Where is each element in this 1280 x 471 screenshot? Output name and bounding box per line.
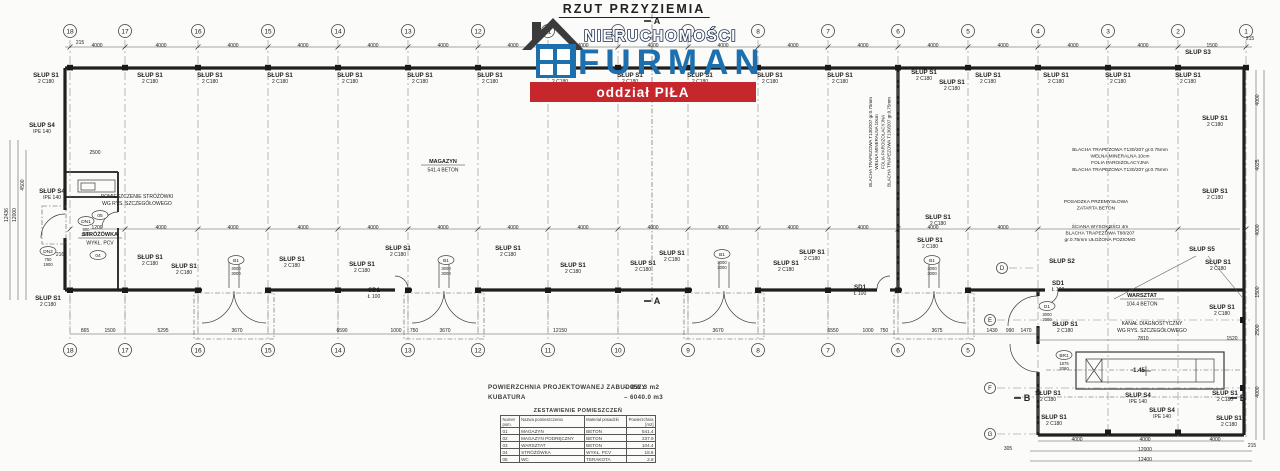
- room-tag-name: WARSZTAT: [1127, 293, 1157, 299]
- dimension-text: 4000: [227, 43, 238, 49]
- door-size: 2060: [1059, 366, 1069, 371]
- column-marker: [1105, 65, 1111, 71]
- dimension-text: 1500: [1255, 286, 1261, 297]
- note-text: ZATARTA BETON: [1077, 206, 1116, 212]
- column-label: SŁUP S4: [29, 122, 55, 129]
- table-row: 03WARSZTATBETON104.4: [501, 442, 656, 449]
- column-label: SŁUP S1: [197, 72, 223, 79]
- column-marker: [405, 65, 411, 71]
- column-marker: [265, 65, 271, 71]
- section-mark: B: [1240, 393, 1247, 403]
- column-label: SŁUP S1: [407, 72, 433, 79]
- column-label: SŁUP S1: [1202, 115, 1228, 122]
- table-cell: STRÓŻÓWKA: [519, 449, 584, 456]
- column-label-profile: 2 C180: [1221, 422, 1237, 428]
- column-marker: [1105, 430, 1111, 436]
- note-text: WEŁNA MINERALNA 10cm: [874, 114, 879, 170]
- column-label: SŁUP S1: [1202, 188, 1228, 195]
- dimension-text: 1470: [1020, 328, 1031, 334]
- grid-number: 4: [1036, 28, 1040, 35]
- logo-graphic: NIERUCHOMOŚCI FURMAN: [520, 14, 790, 80]
- note-text: BLACHA TRAPEZOWA T130/207 gr.0.75mm: [887, 97, 892, 187]
- dimension-text: 4000: [997, 43, 1008, 49]
- door-tag: 05: [97, 213, 103, 219]
- grid-number: 8: [756, 347, 760, 354]
- column-marker: [122, 288, 128, 294]
- door-label: SD1: [368, 287, 381, 294]
- note-text: FOLIA PAROIZOLACYJNA: [880, 115, 885, 169]
- door-size: 3000: [441, 271, 451, 276]
- dimension-text: 4000: [1137, 43, 1148, 49]
- column-label: SŁUP S1: [1212, 390, 1238, 397]
- logo-branch-banner: oddział PIŁA: [530, 82, 756, 102]
- dimension-text: 4000: [1071, 437, 1082, 443]
- door-tag: 04: [95, 253, 101, 259]
- dimension-text: 4000: [997, 225, 1008, 231]
- grid-number: 18: [66, 347, 74, 354]
- column-marker: [1240, 385, 1246, 391]
- dimension-text: 4000: [297, 225, 308, 231]
- column-label-profile: 2 C180: [342, 79, 358, 85]
- dimension-text: 1000: [862, 328, 873, 334]
- dimension-text: 215: [76, 40, 85, 46]
- grid-number: 12: [474, 347, 482, 354]
- table-row: 02MAGAZYN PODRĘCZNYBETON237.9: [501, 435, 656, 442]
- grid-number: 11: [545, 347, 552, 354]
- dimension-text: 1430: [986, 328, 997, 334]
- column-label: SŁUP S1: [337, 72, 363, 79]
- grid-number: 5: [966, 347, 970, 354]
- area-value: – 952.3 m2: [624, 384, 659, 391]
- column-label-profile: IPE 140: [33, 129, 51, 135]
- column-label: SŁUP S1: [267, 72, 293, 79]
- note-text: WG RYS. SZCZEGÓŁOWEGO: [1117, 327, 1187, 334]
- column-label: SŁUP S1: [1105, 72, 1131, 79]
- dimension-text: 4000: [927, 43, 938, 49]
- dimension-text: 4000: [367, 225, 378, 231]
- area-label: POWIERZCHNIA PROJEKTOWANEJ ZABUDOWY: [488, 383, 624, 393]
- dimension-text: 4000: [787, 225, 798, 231]
- column-marker: [475, 288, 481, 294]
- door-size: 3000: [927, 271, 937, 276]
- column-label: SŁUP S1: [659, 250, 685, 257]
- grid-number: 2: [1176, 28, 1180, 35]
- note-text: BLACHA TRAPEZOWA T130/207 gr.0.75mm: [1072, 167, 1168, 173]
- rooms-table-header: Materiał posadzki: [584, 416, 626, 428]
- column-label: SŁUP S1: [477, 72, 503, 79]
- grid-letter: D: [1000, 266, 1005, 272]
- column-label: SŁUP S1: [925, 214, 951, 221]
- column-label: SŁUP S1: [799, 249, 825, 256]
- column-label-profile: 2 C180: [1207, 195, 1223, 201]
- volume-row: KUBATURA– 6040.0 m3: [488, 393, 663, 403]
- column-marker: [1240, 317, 1246, 323]
- column-label-profile: 2 C180: [1046, 421, 1062, 427]
- table-cell: MAGAZYN: [519, 428, 584, 435]
- dimension-text: 3670: [231, 328, 242, 334]
- column-marker: [615, 288, 621, 294]
- table-cell: 104.4: [626, 442, 655, 449]
- column-label-profile: 2 C180: [482, 79, 498, 85]
- table-cell: 01: [501, 428, 520, 435]
- table-cell: 2.8: [626, 456, 655, 463]
- door-tag: DN1: [81, 219, 91, 225]
- door-label-profile: Ł 100: [1052, 287, 1065, 293]
- dimension-text: 4000: [507, 43, 518, 49]
- column-label: SŁUP S1: [1035, 390, 1061, 397]
- dimension-text: 750: [880, 328, 889, 334]
- column-label-profile: 2 C180: [832, 79, 848, 85]
- column-label: SŁUP S1: [1209, 304, 1235, 311]
- column-label-profile: 2 C180: [1210, 266, 1226, 272]
- dimension-text: 4025: [1255, 159, 1261, 170]
- dimension-text: 12000: [1138, 447, 1152, 453]
- section-mark: B: [1024, 393, 1031, 403]
- volume-value: – 6040.0 m3: [624, 394, 663, 401]
- column-marker: [1175, 430, 1181, 436]
- dimension-text: 6590: [336, 328, 347, 334]
- dimension-text: 3670: [712, 328, 723, 334]
- column-label-profile: 2 C180: [778, 267, 794, 273]
- column-label-profile: 2 C180: [142, 261, 158, 267]
- dimension-text: 750: [410, 328, 419, 334]
- table-cell: WYKŁ. PCV: [584, 449, 626, 456]
- drawing-sheet: 1817161514131211109876543211817161514131…: [0, 0, 1280, 471]
- watermark-logo: NIERUCHOMOŚCI FURMAN: [520, 14, 790, 80]
- column-label-profile: 2 C180: [1207, 122, 1223, 128]
- table-cell: 237.9: [626, 435, 655, 442]
- column-marker: [122, 65, 128, 71]
- table-cell: 541.4: [626, 428, 655, 435]
- dimension-text: 1500: [104, 328, 115, 334]
- column-label: SŁUP S3: [1185, 49, 1211, 56]
- column-label-profile: 2 C180: [565, 269, 581, 275]
- dimension-text: 5295: [157, 328, 168, 334]
- column-label-profile: 2 C180: [38, 79, 54, 85]
- dimension-text: 1520: [1226, 336, 1237, 342]
- door-label: SD1: [1052, 280, 1065, 287]
- dimension-text: 4000: [1255, 386, 1261, 397]
- column-label-profile: 2 C180: [40, 302, 56, 308]
- column-label-profile: 2 C180: [1110, 79, 1126, 85]
- grid-number: 5: [966, 28, 970, 35]
- rooms-table: ZESTAWIENIE POMIESZCZEŃ Numer pom.Nazwa …: [500, 408, 656, 463]
- column-label: SŁUP S1: [349, 261, 375, 268]
- column-label: SŁUP S1: [975, 72, 1001, 79]
- annotation-notes: POMIESZCZENIE STRÓŻÓWKIWG RYS. SZCZEGÓŁO…: [101, 97, 1187, 334]
- grid-number: 15: [264, 347, 272, 354]
- column-label: SŁUP S4: [1149, 407, 1175, 414]
- logo-furman-text: FURMAN: [578, 43, 766, 80]
- column-label: SŁUP S1: [1043, 72, 1069, 79]
- column-marker: [475, 65, 481, 71]
- column-label: SŁUP S1: [1041, 414, 1067, 421]
- column-marker: [895, 65, 901, 71]
- grid-number: 7: [826, 347, 830, 354]
- column-label-profile: 2 C180: [916, 76, 932, 82]
- door-tag: DN2: [43, 249, 53, 255]
- door-tag: B1: [929, 258, 935, 264]
- column-label: SŁUP S1: [35, 295, 61, 302]
- dimension-text: 4000: [437, 225, 448, 231]
- column-marker: [1243, 65, 1249, 71]
- rooms-table-header: Powierzchnia [m2]: [626, 416, 655, 428]
- dimension-text: 4000: [297, 43, 308, 49]
- column-label-profile: 2 C180: [664, 257, 680, 263]
- grid-number: 13: [404, 347, 412, 354]
- column-label-profile: 2 C180: [944, 86, 960, 92]
- rooms-table-header: Nazwa pomieszczenia: [519, 416, 584, 428]
- grid-number: 15: [264, 28, 272, 35]
- column-marker: [545, 288, 551, 294]
- dimension-text: 4500: [20, 179, 26, 190]
- table-row: 04STRÓŻÓWKAWYKŁ. PCV18.9: [501, 449, 656, 456]
- column-label-profile: 2 C180: [1214, 311, 1230, 317]
- column-label: SŁUP S1: [827, 72, 853, 79]
- room-tag-name: STRÓŻÓWKA: [82, 230, 118, 238]
- dimension-text: 4000: [857, 225, 868, 231]
- grid-number: 17: [121, 347, 129, 354]
- column-marker: [685, 288, 691, 294]
- table-row: 01MAGAZYNBETON541.4: [501, 428, 656, 435]
- dimension-text: 12400: [1138, 457, 1152, 463]
- column-label: SŁUP S1: [773, 260, 799, 267]
- column-label: SŁUP S1: [1175, 72, 1201, 79]
- dimension-text: 1500: [1206, 43, 1217, 49]
- note-text: WEŁNA MINERALNA 10cm: [1091, 154, 1150, 160]
- door-tag: D1: [1044, 304, 1050, 310]
- note-text: FOLIA PAROIZOLACYJNA: [1091, 160, 1150, 166]
- dimension-text: 215: [1248, 443, 1257, 449]
- column-label: SŁUP S2: [1049, 258, 1075, 265]
- dimension-text: 4000: [155, 43, 166, 49]
- note-text: POSADZKA PRZEMYSŁOWA: [1064, 199, 1129, 205]
- note-text: gr.0.75mm UŁOŻONA POZIOMO: [1065, 236, 1136, 243]
- column-label-profile: 2 C180: [980, 79, 996, 85]
- note-text: BLACHA TRAPEZOWA T80/207: [1066, 231, 1135, 237]
- furman-house-icon: [522, 18, 584, 78]
- table-cell: 03: [501, 442, 520, 449]
- dimension-text: 4000: [857, 43, 868, 49]
- column-label: SŁUP S1: [33, 72, 59, 79]
- grid-number: 3: [1106, 28, 1110, 35]
- column-marker: [895, 288, 901, 294]
- column-label: SŁUP S1: [939, 79, 965, 86]
- dimension-text: 12000: [12, 208, 18, 222]
- dimension-text: 1000: [390, 328, 401, 334]
- grid-number: 7: [826, 28, 830, 35]
- grid-number: 14: [334, 28, 342, 35]
- grid-letter: G: [988, 432, 993, 438]
- grid-number: 12: [474, 28, 482, 35]
- column-label-profile: IPE 140: [43, 195, 61, 201]
- grid-number: 13: [404, 28, 412, 35]
- column-label: SŁUP S1: [630, 260, 656, 267]
- column-label-profile: 2 C180: [1040, 397, 1056, 403]
- column-label-profile: 2 C180: [1057, 328, 1073, 334]
- column-marker: [335, 288, 341, 294]
- column-label: SŁUP S1: [137, 72, 163, 79]
- column-marker: [965, 65, 971, 71]
- column-marker: [195, 288, 201, 294]
- door-tag: B1: [233, 258, 239, 264]
- column-label-profile: 2 C180: [272, 79, 288, 85]
- dimension-text: 12150: [553, 328, 567, 334]
- table-cell: BETON: [584, 442, 626, 449]
- table-cell: 04: [501, 449, 520, 456]
- dimension-text: 4000: [507, 225, 518, 231]
- column-label: SŁUP S1: [1205, 259, 1231, 266]
- door-tag: B1: [719, 252, 725, 258]
- note-text: WG RYS. SZCZEGÓŁOWEGO: [102, 200, 172, 207]
- table-cell: 02: [501, 435, 520, 442]
- table-cell: BETON: [584, 435, 626, 442]
- area-row: POWIERZCHNIA PROJEKTOWANEJ ZABUDOWY– 952…: [488, 383, 663, 393]
- dimension-text: 2500: [89, 150, 100, 156]
- dimension-text: 4000: [927, 225, 938, 231]
- dimension-text: 4000: [647, 225, 658, 231]
- grid-number: 1: [1244, 28, 1248, 35]
- column-label-profile: IPE 140: [1129, 399, 1147, 405]
- column-marker: [195, 65, 201, 71]
- dimension-text: 4000: [1067, 43, 1078, 49]
- grid-number: 6: [896, 28, 900, 35]
- grid-number: 6: [896, 347, 900, 354]
- column-label: SŁUP S4: [39, 188, 65, 195]
- column-label-profile: 2 C180: [1048, 79, 1064, 85]
- column-label-profile: IPE 140: [1153, 414, 1171, 420]
- dimension-text: 865: [81, 328, 90, 334]
- table-cell: TERAKOTA: [584, 456, 626, 463]
- column-label: SŁUP S5: [1189, 246, 1215, 253]
- column-labels: SŁUP S12 C180SŁUP S12 C180SŁUP S12 C180S…: [29, 49, 1242, 428]
- column-label-profile: 2 C180: [284, 263, 300, 269]
- rooms-table-title: ZESTAWIENIE POMIESZCZEŃ: [500, 408, 656, 414]
- grid-number: 10: [614, 347, 622, 354]
- grid-number: 16: [194, 347, 202, 354]
- column-label-profile: 2 C180: [354, 268, 370, 274]
- door-label-profile: Ł 100: [854, 291, 867, 297]
- note-text: ŚCIANA WYSOKOŚCI 4m: [1072, 222, 1129, 230]
- room-tag-area: 104.4 BETON: [1126, 302, 1157, 308]
- dimension-text: 990: [1006, 328, 1015, 334]
- column-marker: [67, 288, 73, 294]
- room-tag-area: WYKŁ. PCV: [86, 241, 114, 247]
- column-marker: [67, 65, 73, 71]
- column-label-profile: 2 C180: [390, 252, 406, 258]
- area-summary: POWIERZCHNIA PROJEKTOWANEJ ZABUDOWY– 952…: [488, 383, 663, 403]
- column-label: SŁUP S4: [1125, 392, 1151, 399]
- room-tag-name: MAGAZYN: [429, 159, 457, 165]
- column-label-profile: 2 C180: [176, 270, 192, 276]
- door-tag: BR1: [1059, 353, 1069, 359]
- column-label-profile: 2 C180: [635, 267, 651, 273]
- column-label: SŁUP S1: [1052, 321, 1078, 328]
- dimension-text: 4000: [577, 225, 588, 231]
- dimension-text: 4000: [1139, 437, 1150, 443]
- door-label: SD1: [854, 284, 867, 291]
- column-marker: [965, 288, 971, 294]
- grid-number: 17: [121, 28, 129, 35]
- column-label: SŁUP S1: [911, 69, 937, 76]
- table-cell: WC: [519, 456, 584, 463]
- table-row: 05WCTERAKOTA2.8: [501, 456, 656, 463]
- column-marker: [265, 288, 271, 294]
- dimension-text: 1200: [91, 225, 102, 231]
- grid-letter: F: [988, 386, 992, 392]
- level-mark: -1.45: [1131, 368, 1145, 374]
- table-cell: MAGAZYN PODRĘCZNY: [519, 435, 584, 442]
- dimension-text: 4000: [437, 43, 448, 49]
- door-size: 3000: [231, 271, 241, 276]
- column-label-profile: 2 C180: [412, 79, 428, 85]
- column-label-profile: 2 C180: [202, 79, 218, 85]
- grid-number: 18: [66, 28, 74, 35]
- note-text: POMIESZCZENIE STRÓŻÓWKI: [101, 193, 174, 200]
- door-size: 3000: [717, 265, 727, 270]
- note-text: BLACHA TRAPEZOWA T130/207 gr.0.75mm: [1072, 147, 1168, 153]
- table-cell: WARSZTAT: [519, 442, 584, 449]
- column-label-profile: 2 C180: [1180, 79, 1196, 85]
- grid-number: 16: [194, 28, 202, 35]
- dimension-text: 4000: [1255, 94, 1261, 105]
- dimension-text: 305: [1004, 446, 1013, 452]
- door-label-profile: Ł 100: [368, 294, 381, 300]
- dimension-text: 215: [1246, 36, 1255, 42]
- dimension-text: 4000: [367, 43, 378, 49]
- column-label-profile: 2 C180: [500, 252, 516, 258]
- dimension-text: 4000: [155, 225, 166, 231]
- column-label-profile: 2 C180: [142, 79, 158, 85]
- rooms-table-header: Numer pom.: [501, 416, 520, 428]
- dimension-text: 12436: [4, 208, 10, 222]
- column-marker: [405, 288, 411, 294]
- column-label: SŁUP S1: [560, 262, 586, 269]
- column-marker: [1035, 65, 1041, 71]
- dimension-text: 4000: [227, 225, 238, 231]
- grid-letter: E: [988, 318, 992, 324]
- column-marker: [755, 288, 761, 294]
- dimension-text: 2500: [1255, 324, 1261, 335]
- dimension-text: 4000: [1255, 224, 1261, 235]
- column-label: SŁUP S1: [137, 254, 163, 261]
- column-label-profile: 2 C180: [804, 256, 820, 262]
- dimension-text: 4000: [717, 225, 728, 231]
- column-label: SŁUP S1: [1216, 415, 1242, 422]
- note-text: KANAŁ DIAGNOSTYCZNY: [1122, 321, 1184, 327]
- door-tag: B1: [443, 258, 449, 264]
- dimension-text: 3675: [931, 328, 942, 334]
- column-label-profile: 2 C180: [922, 244, 938, 250]
- table-cell: 18.9: [626, 449, 655, 456]
- section-mark: A: [654, 296, 661, 306]
- column-label: SŁUP S1: [495, 245, 521, 252]
- door-size: 1900: [43, 262, 53, 267]
- door-size: 2000: [1042, 317, 1052, 322]
- dimension-text: 6550: [827, 328, 838, 334]
- column-marker: [825, 65, 831, 71]
- dimension-text: 216: [56, 252, 65, 258]
- dimension-text: 3670: [439, 328, 450, 334]
- column-label: SŁUP S1: [385, 245, 411, 252]
- room-tag-area: 541.4 BETON: [427, 168, 458, 174]
- dimension-text: 7810: [1137, 336, 1148, 342]
- grid-number: 14: [334, 347, 342, 354]
- walls: [65, 68, 1244, 435]
- dimension-text: 4000: [91, 43, 102, 49]
- note-text: BLACHA TRAPEZOWA T130/207 gr.0.75mm: [868, 97, 873, 187]
- volume-label: KUBATURA: [488, 393, 624, 403]
